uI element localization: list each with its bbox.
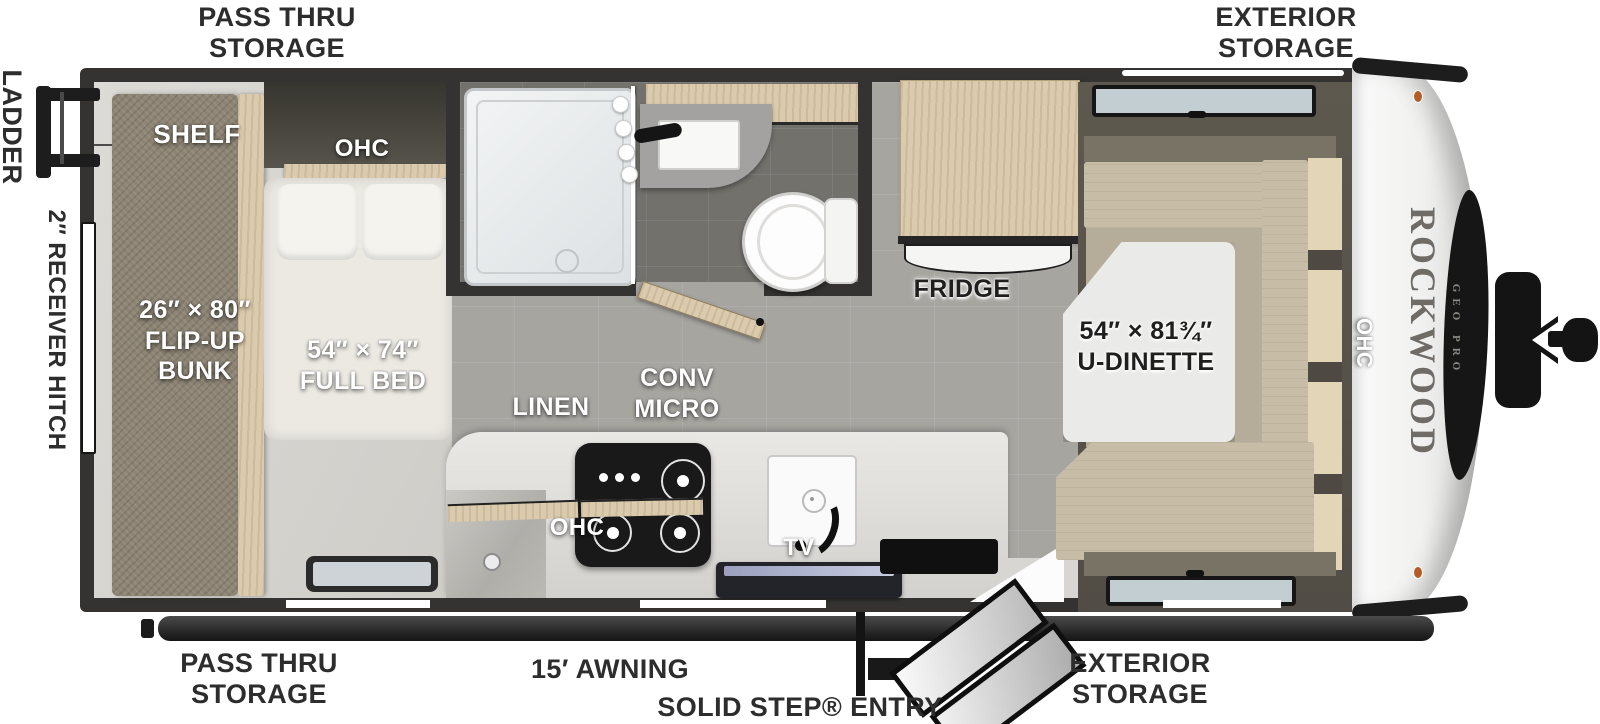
tv-screen [724, 566, 894, 576]
label-receiver-hitch: 2″ RECEIVER HITCH [44, 180, 70, 480]
cooktop-burner [660, 513, 700, 553]
cabinet-knob [483, 553, 501, 571]
label-ohc-dinette: OHC [1351, 301, 1377, 385]
marker-light-bottom [1413, 566, 1423, 579]
label-awning: 15′ AWNING [490, 654, 730, 685]
label-exterior-storage-top: EXTERIOR STORAGE [1166, 2, 1406, 65]
pillow-left [276, 184, 358, 260]
window-latch [1186, 570, 1204, 577]
curtain-ring [615, 120, 632, 137]
media-cabinet [880, 539, 998, 574]
awning-bar [158, 616, 1434, 641]
tv-unit [716, 562, 902, 598]
label-ladder: LADDER [0, 52, 27, 202]
label-u-dinette: 54″ × 81¾″ U-DINETTE [1051, 316, 1241, 377]
entry-step-post [856, 612, 865, 696]
dinette-bench-bottom [1056, 442, 1314, 560]
label-tv: TV [759, 533, 839, 562]
wall-window-segment [286, 600, 430, 608]
label-pass-thru-storage-bottom: PASS THRU STORAGE [139, 648, 379, 711]
bathroom-wall-left [446, 82, 460, 296]
wall-window-segment [640, 600, 826, 608]
curtain-ring [612, 96, 629, 113]
label-ohc-kitchen: OHC [527, 513, 627, 542]
shower-tub-inner [476, 100, 624, 274]
bedroom-floor-hatch [306, 556, 438, 592]
label-fridge: FRIDGE [892, 274, 1032, 305]
dinette-bench-bottom-back [1084, 552, 1336, 576]
fridge-cabinet [900, 80, 1080, 240]
bedroom-ohc-shelf [284, 164, 452, 178]
curtain-ring [618, 144, 635, 161]
dinette-bench-top-back [1084, 136, 1336, 162]
brand-make: ROCKWOOD [1404, 167, 1444, 497]
cooktop-knob [615, 473, 624, 482]
cooktop-knob [631, 473, 640, 482]
wall-window-segment [1163, 600, 1281, 608]
hitch-jack-handle [1562, 318, 1598, 362]
ladder-rung-bottom [44, 154, 100, 167]
toilet-tank [824, 198, 858, 284]
cooktop-burner [661, 459, 705, 503]
shower-curtain-rod [631, 86, 635, 284]
label-pass-thru-storage-top: PASS THRU STORAGE [157, 2, 397, 65]
brand-series: GEO PRO [1446, 250, 1462, 410]
shower-drain [555, 249, 579, 273]
label-shelf: SHELF [117, 119, 277, 151]
marker-light-top [1413, 90, 1423, 103]
awning-end-cap [141, 619, 154, 638]
ladder-icon [36, 84, 100, 180]
label-full-bed: 54″ × 74″ FULL BED [263, 335, 463, 396]
pillow-right [362, 184, 444, 260]
cooktop-knob [599, 473, 608, 482]
bathroom-door-handle [756, 318, 764, 326]
curtain-ring [621, 166, 638, 183]
shower-tub [464, 88, 636, 286]
label-conv-micro: CONV MICRO [597, 363, 757, 424]
toilet-seat [757, 204, 829, 280]
wall-window-segment [1122, 70, 1344, 76]
label-ohc-bedroom: OHC [312, 134, 412, 163]
receiver-hitch-bar [81, 222, 96, 454]
floorplan-canvas: PASS THRU STORAGE EXTERIOR STORAGE LADDE… [0, 0, 1600, 724]
fridge-counter-lip [898, 236, 1080, 244]
window-latch [1188, 111, 1206, 118]
bathroom-wall-right [858, 82, 872, 296]
label-exterior-storage-bottom: EXTERIOR STORAGE [1020, 648, 1260, 711]
label-solid-step-entry: SOLID STEP® ENTRY [640, 692, 960, 723]
ladder-inner-rail [60, 92, 64, 164]
ladder-rung-top [44, 88, 100, 101]
